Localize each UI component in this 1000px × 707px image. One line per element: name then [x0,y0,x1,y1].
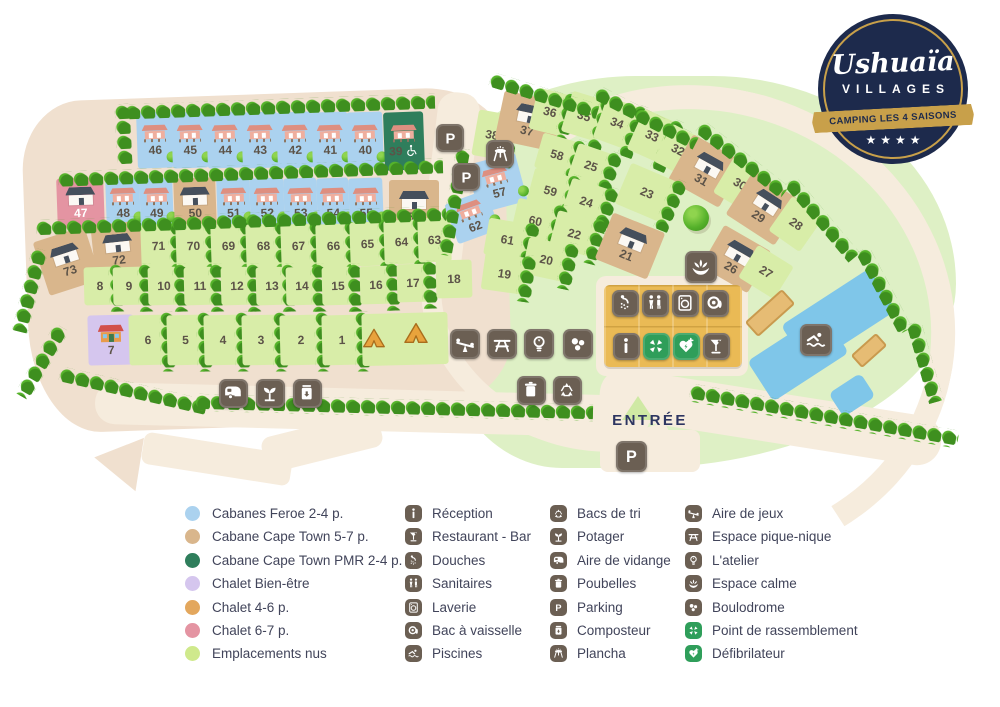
pitch-number: 12 [230,280,244,292]
legend-color-dot [185,506,200,521]
legend-label: Emplacements nus [212,646,327,661]
legend-label: Bacs de tri [577,506,641,521]
legend-item: Plancha [550,645,671,662]
pitch-number: 61 [500,232,515,246]
lotus-icon [685,251,717,283]
stilt-cabin-icon [390,124,417,142]
pitch-number: 66 [327,240,341,252]
swim-icon [405,645,422,662]
legend-item: Piscines [405,645,531,662]
cottage-cabin-icon [48,241,82,267]
pitch-13: 13 [256,267,289,306]
pitch-number: 5 [182,334,189,346]
legend-item: Emplacements nus [185,645,402,662]
laundry-icon [405,599,422,616]
pitch-number: 69 [222,240,236,252]
legend-color-dot [185,553,200,568]
legend-item: Poubelles [550,575,671,592]
legend-label: Réception [432,506,493,521]
recycle-icon [550,505,567,522]
legend-item: Composteur [550,622,671,639]
trash-icon [550,575,567,592]
legend-label: Cabane Cape Town PMR 2-4 p. [212,553,402,568]
svg-text:P: P [626,448,637,466]
cottage-cabin-icon [65,186,96,205]
grill-icon [486,140,514,168]
legend-label: Espace calme [712,576,797,591]
legend-facilities-1: RéceptionRestaurant - BarDouchesSanitair… [405,505,531,669]
trash-icon [517,376,546,405]
pitch-number: 17 [406,277,420,289]
site-logo: Ushuaïa VILLAGES CAMPING LES 4 SAISONS ★… [818,14,968,164]
boules-icon [685,599,702,616]
legend-label: Aire de vidange [577,553,671,568]
legend-label: Douches [432,553,485,568]
logo-banner-text: CAMPING LES 4 SAISONS [829,110,957,128]
tree [683,205,709,231]
legend-label: Aire de jeux [712,506,783,521]
legend-label: Point de rassemblement [712,623,858,638]
pitch-number: 14 [295,280,309,292]
legend-item: Boulodrome [685,599,858,616]
stilt-cabin-icon [143,187,170,205]
legend-color-dot [185,529,200,544]
pitch-number: 19 [497,267,512,281]
legend-item: Sanitaires [405,575,531,592]
legend-item: Réception [405,505,531,522]
stilt-cabin-icon [352,187,379,205]
legend-label: Espace pique-nique [712,529,831,544]
pitch-number: 65 [361,238,375,250]
pitch-5: 5 [166,315,204,366]
stilt-cabin-icon [319,187,346,205]
stilt-cabin-icon [480,165,510,188]
stilt-cabin-icon [176,124,203,142]
tent-icon [402,319,430,347]
legend-label: Plancha [577,646,626,661]
pitch-number: 21 [618,247,635,263]
pitch-4: 4 [203,315,242,366]
picnic-icon [685,528,702,545]
pitch-number: 27 [757,263,775,280]
legend-label: Défibrilateur [712,646,785,661]
compost-icon [293,379,322,408]
pitch-43: 43 [241,111,279,168]
svg-text:P: P [445,131,455,147]
pitch-number: 3 [258,334,265,346]
assembly-icon [643,333,670,360]
cocktail-icon [405,528,422,545]
legend-label: Laverie [432,600,476,615]
boules-icon [563,329,593,359]
legend-color-dot [185,576,200,591]
stilt-cabin-icon [253,187,280,205]
pitch-number: 13 [265,280,279,292]
legend-item: Bacs de tri [550,505,671,522]
picnic-icon [487,329,517,359]
parking-icon: P [616,441,647,472]
pitch-8: 8 [84,267,117,306]
pitch-67: 67 [280,223,317,268]
legend-facilities-3: Aire de jeuxEspace pique-niqueL'atelierE… [685,505,858,669]
legend-label: Chalet 6-7 p. [212,623,289,638]
pitch-44: 44 [206,111,244,168]
legend-label: Poubelles [577,576,636,591]
legend-item: Restaurant - Bar [405,528,531,545]
legend-label: Parking [577,600,623,615]
exit-arrow-icon [90,431,144,492]
parking-icon: P [452,163,480,191]
wc-icon [642,290,669,317]
pitch-number: 41 [323,143,337,155]
legend-label: Cabane Cape Town 5-7 p. [212,529,369,544]
legend-label: Chalet Bien-être [212,576,310,591]
legend-color-dot [185,600,200,615]
pitch-number: 25 [583,158,600,174]
shower-icon [405,552,422,569]
defib-icon [685,645,702,662]
shower-icon [612,290,639,317]
legend-label: Restaurant - Bar [432,529,531,544]
pitch-number: 6 [145,334,152,346]
legend-label: Potager [577,529,624,544]
pitch-number: 39 [389,145,403,157]
pitch-number: 62 [467,218,484,234]
legend-item: Cabanes Feroe 2-4 p. [185,505,402,522]
legend-facilities-2: Bacs de triPotagerAire de vidangePoubell… [550,505,671,669]
pitch-41: 41 [311,111,349,168]
parking-icon: P [436,124,464,152]
pitch-number: 47 [74,207,88,219]
pitch-number: 59 [542,183,558,198]
grill-icon [550,645,567,662]
pitch-2: 2 [279,314,322,365]
stilt-cabin-icon [220,187,247,205]
stilt-cabin-icon [281,124,308,142]
pitch-11: 11 [184,267,217,306]
pitch-number: 2 [298,334,305,346]
pitch-number: 40 [358,143,372,155]
bulb-icon [524,329,554,359]
pitch-number: 34 [609,115,626,131]
legend-label: Chalet 4-6 p. [212,600,289,615]
pitch-number: 8 [97,280,104,292]
pitch-number: 28 [787,215,805,232]
pitch-46: 46 [136,111,174,168]
pitch-number: 16 [369,279,383,291]
pitch-number: 7 [108,343,115,355]
pitch-number: 64 [395,236,409,248]
pitch-number: 42 [288,143,302,155]
pitch-number: 57 [491,185,507,200]
stilt-cabin-icon [351,124,378,142]
parking-icon: P [550,599,567,616]
pitch-number: 10 [157,280,171,292]
stilt-cabin-icon [109,187,136,205]
trees [114,104,132,165]
compost-icon [550,622,567,639]
cottage-cabin-icon [101,233,133,254]
chalet-icon [98,324,124,342]
legend-item: Chalet 6-7 p. [185,622,402,639]
pitch-number: 45 [183,143,197,155]
logo-brand: Ushuaïa [818,45,969,81]
tent-icon [361,325,387,351]
legend-item: Douches [405,552,531,569]
pitch-69: 69 [210,223,247,268]
pitch-number: 46 [148,143,162,155]
stilt-cabin-icon [287,187,314,205]
legend-item: Bac à vaisselle [405,622,531,639]
lotus-icon [685,575,702,592]
seesaw-icon [450,329,480,359]
legend-item: Point de rassemblement [685,622,858,639]
pitch-9: 9 [113,267,146,306]
stilt-cabin-icon [246,124,273,142]
pitch-1: 1 [321,314,362,365]
pitch-number: 43 [253,143,267,155]
recycle-icon [553,376,582,405]
cottage-cabin-icon [179,186,210,205]
pitch-68: 68 [245,223,282,268]
stilt-cabin-icon [316,124,343,142]
dishes-icon [702,290,729,317]
legend-item: Espace pique-nique [685,528,858,545]
legend-item: Chalet Bien-être [185,575,402,592]
pitch-number: 24 [578,194,594,210]
logo-subtitle: VILLAGES [818,82,968,96]
stilt-cabin-icon [211,124,238,142]
pitch-number: 1 [339,334,346,346]
swim-icon [800,324,832,356]
pitch-number: 18 [447,273,461,285]
pitch-number: 68 [257,240,271,252]
legend-item: Potager [550,528,671,545]
dishes-icon [405,622,422,639]
campground-map: ENTRÉE 464544434241403947484950515253545… [0,0,1000,707]
legend-item: Défibrilateur [685,645,858,662]
pitch-14: 14 [286,267,319,306]
legend-plots: Cabanes Feroe 2-4 p.Cabane Cape Town 5-7… [185,505,402,669]
pitch-65: 65 [349,221,386,266]
pitch-45: 45 [171,111,209,168]
svg-text:P: P [461,170,471,186]
legend-item: PParking [550,599,671,616]
pitch-number: 44 [218,143,232,155]
pitch-number: 70 [187,240,201,252]
assembly-icon [685,622,702,639]
legend-item: Laverie [405,599,531,616]
legend-label: Sanitaires [432,576,492,591]
sprout-icon [256,379,285,408]
caravan-icon [550,552,567,569]
pitch-64: 64 [383,219,420,264]
legend-label: Bac à vaisselle [432,623,522,638]
cocktail-icon [703,333,730,360]
pitch-10: 10 [148,267,181,306]
legend-item: Chalet 4-6 p. [185,599,402,616]
info-icon [613,333,640,360]
legend-color-dot [185,623,200,638]
pitch-number: 20 [539,252,555,267]
sprout-icon [550,528,567,545]
caravan-icon [219,379,248,408]
pitch-12: 12 [221,267,254,306]
pitch-number: 67 [292,240,306,252]
legend-label: L'atelier [712,553,759,568]
logo-stars: ★★★★ [818,133,968,147]
legend-item: Cabane Cape Town PMR 2-4 p. [185,552,402,569]
pitch-15: 15 [322,267,355,306]
legend-label: Cabanes Feroe 2-4 p. [212,506,343,521]
pitch-3: 3 [241,315,280,366]
pitch-number: 9 [126,280,133,292]
pitch-66: 66 [315,223,352,268]
pitch-number: 23 [638,185,655,201]
pitch-number: 73 [62,263,78,279]
pitch-number: 71 [152,240,166,252]
legend-label: Piscines [432,646,482,661]
legend-item: Aire de jeux [685,505,858,522]
pitch-19: 19 [481,252,529,295]
entrance-label: ENTRÉE [580,412,720,429]
legend-item: Cabane Cape Town 5-7 p. [185,528,402,545]
wc-icon [405,575,422,592]
pitch-number: 11 [194,280,207,292]
pitch-6: 6 [128,315,167,366]
stilt-cabin-icon [141,124,168,142]
legend-label: Boulodrome [712,600,785,615]
defib-icon [673,333,700,360]
seesaw-icon [685,505,702,522]
pitch-number: 15 [331,280,345,292]
legend-item: Aire de vidange [550,552,671,569]
laundry-icon [672,290,699,317]
pitch-17: 17 [397,264,430,303]
legend-item: Espace calme [685,575,858,592]
pitch-18: 18 [436,260,473,299]
wheelchair-icon [405,143,419,157]
legend-label: Composteur [577,623,651,638]
pitch-number: 22 [566,226,582,241]
legend-item: L'atelier [685,552,858,569]
pitch-16: 16 [360,266,393,305]
info-icon [405,505,422,522]
pitch-number: 58 [549,147,565,162]
svg-text:P: P [555,602,561,612]
legend-color-dot [185,646,200,661]
pitch-number: 4 [220,334,227,346]
bulb-icon [685,552,702,569]
pitch-42: 42 [276,111,314,168]
